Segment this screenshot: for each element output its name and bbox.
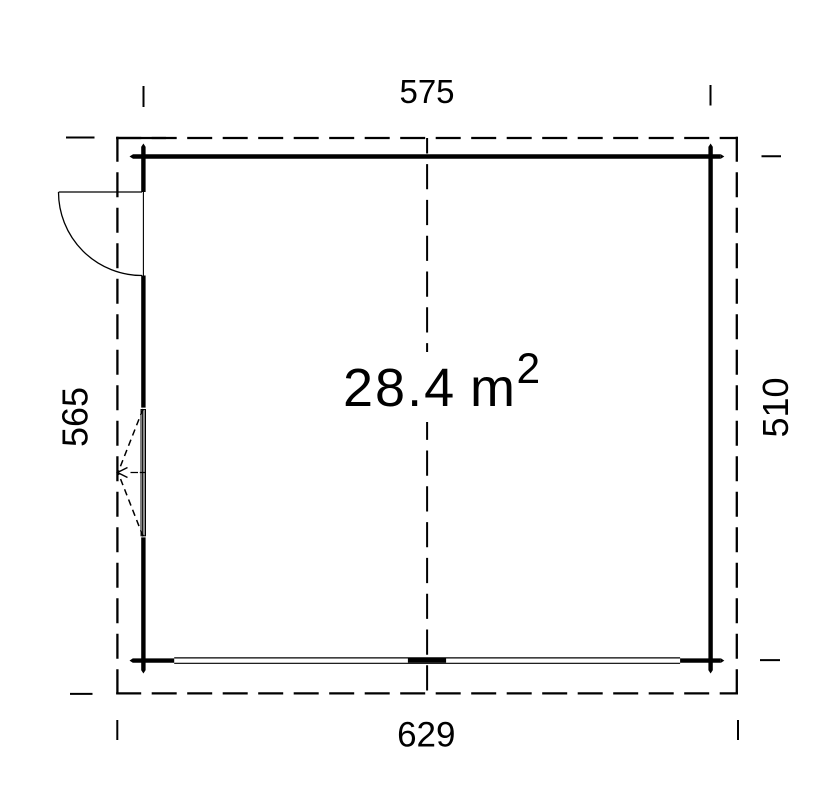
svg-text:575: 575	[399, 73, 454, 110]
svg-text:629: 629	[397, 716, 455, 755]
svg-text:m: m	[470, 358, 515, 418]
svg-text:565: 565	[55, 387, 96, 447]
svg-text:510: 510	[755, 377, 796, 437]
svg-text:28.4: 28.4	[343, 358, 456, 418]
svg-text:2: 2	[517, 346, 541, 393]
